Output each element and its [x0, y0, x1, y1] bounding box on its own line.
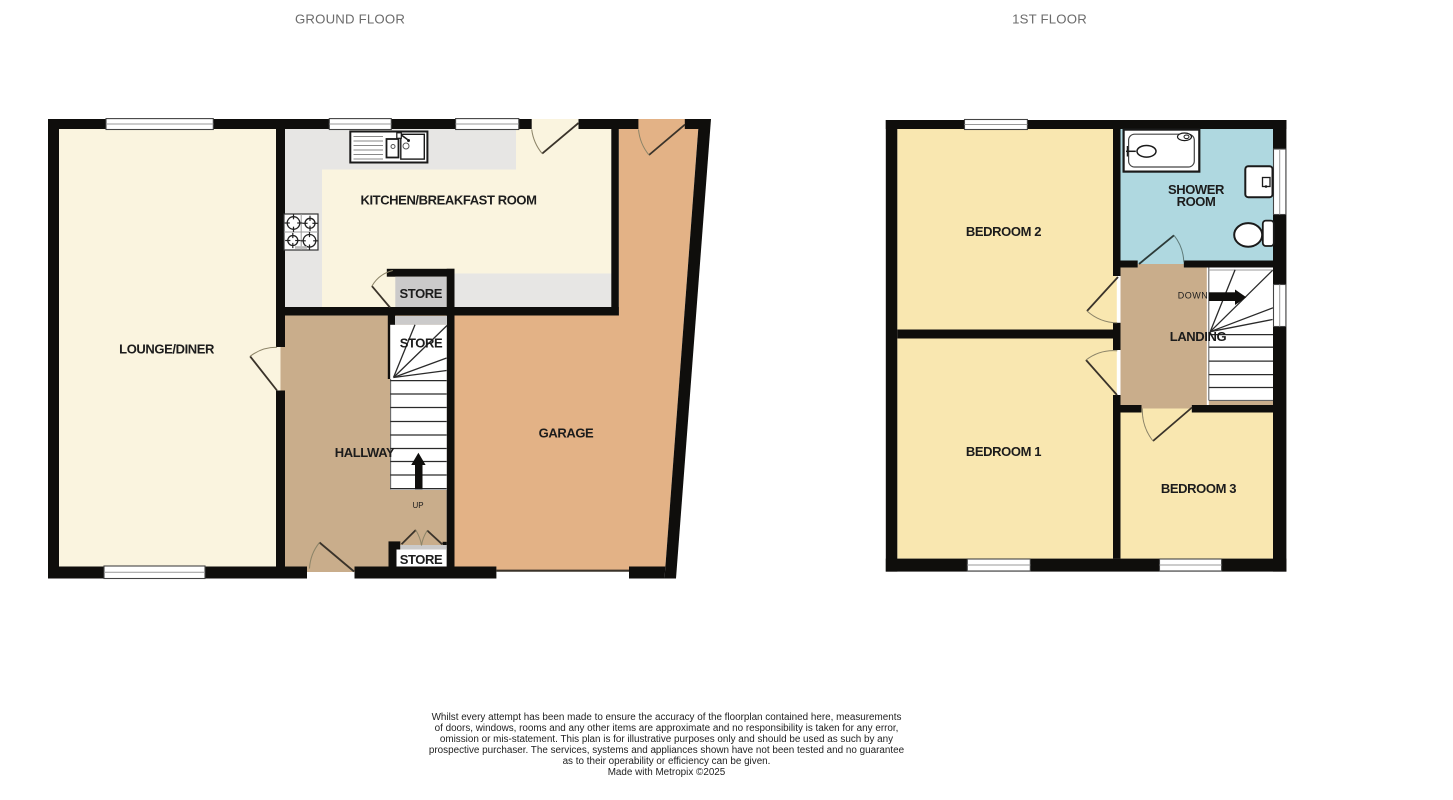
svg-text:prospective purchaser. The ser: prospective purchaser. The services, sys… [429, 745, 905, 756]
svg-text:BEDROOM 3: BEDROOM 3 [1161, 481, 1236, 496]
svg-text:BEDROOM 1: BEDROOM 1 [966, 444, 1041, 459]
svg-text:GROUND FLOOR: GROUND FLOOR [295, 12, 405, 27]
svg-text:KITCHEN/BREAKFAST ROOM: KITCHEN/BREAKFAST ROOM [360, 193, 536, 208]
svg-text:UP: UP [412, 501, 423, 510]
svg-text:STORE: STORE [400, 336, 443, 351]
svg-text:GARAGE: GARAGE [539, 426, 594, 441]
svg-text:HALLWAY: HALLWAY [335, 445, 395, 460]
svg-text:as to their operability or eff: as to their operability or efficiency ca… [563, 756, 771, 767]
svg-text:Made with Metropix ©2025: Made with Metropix ©2025 [608, 767, 726, 778]
svg-text:BEDROOM 2: BEDROOM 2 [966, 224, 1041, 239]
svg-text:DOWN: DOWN [1178, 291, 1209, 301]
svg-text:LANDING: LANDING [1170, 329, 1227, 344]
svg-text:ROOM: ROOM [1177, 194, 1216, 209]
svg-text:Whilst every attempt has been: Whilst every attempt has been made to en… [432, 712, 902, 723]
svg-text:of doors, windows, rooms and a: of doors, windows, rooms and any other i… [435, 723, 899, 734]
svg-text:1ST FLOOR: 1ST FLOOR [1012, 12, 1087, 27]
svg-text:STORE: STORE [400, 286, 443, 301]
svg-text:STORE: STORE [400, 552, 443, 567]
svg-text:omission or mis-statement. Thi: omission or mis-statement. This plan is … [440, 734, 893, 745]
svg-text:LOUNGE/DINER: LOUNGE/DINER [119, 342, 215, 357]
